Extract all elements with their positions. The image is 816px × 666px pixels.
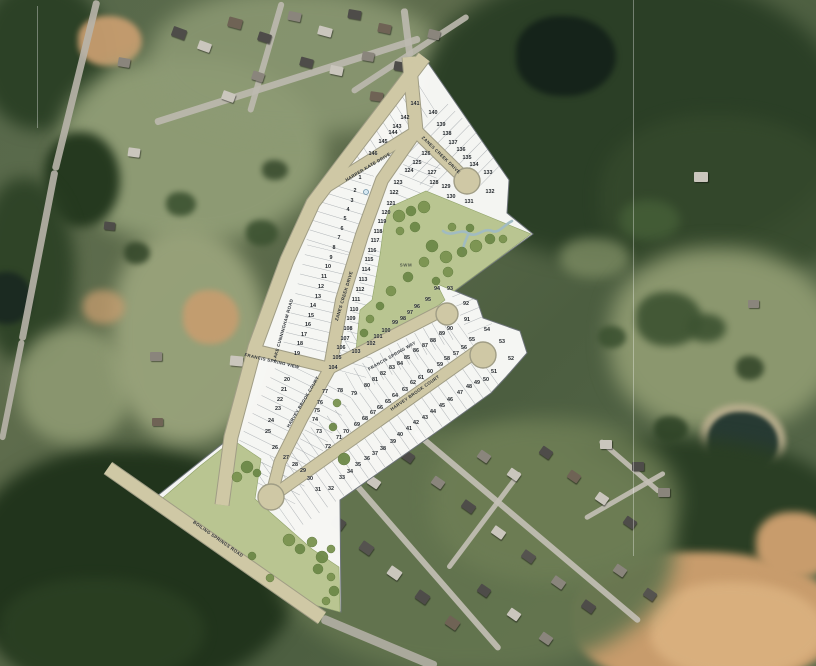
lot-number: 138 bbox=[442, 130, 451, 136]
lot-number: 61 bbox=[418, 374, 424, 380]
lot-number: 142 bbox=[400, 114, 409, 120]
lot-number: 5 bbox=[343, 215, 346, 221]
lot-number: 26 bbox=[272, 444, 278, 450]
lot-number: 62 bbox=[410, 379, 416, 385]
lot-number: 9 bbox=[329, 254, 332, 260]
lot-number: 10 bbox=[325, 263, 331, 269]
lot-number: 132 bbox=[485, 188, 494, 194]
lot-number: 137 bbox=[448, 139, 457, 145]
lot-number: 82 bbox=[380, 370, 386, 376]
lot-number: 37 bbox=[372, 450, 378, 456]
lot-number: 144 bbox=[388, 129, 397, 135]
lot-number: 80 bbox=[364, 382, 370, 388]
lot-number: 104 bbox=[328, 364, 337, 370]
lot-number: 72 bbox=[325, 443, 331, 449]
lot-number: 56 bbox=[461, 344, 467, 350]
lot-number: 101 bbox=[373, 333, 382, 339]
lot-number: 99 bbox=[392, 319, 398, 325]
lot-number: 76 bbox=[317, 399, 323, 405]
lot-number: 52 bbox=[508, 355, 514, 361]
lot-number: 60 bbox=[427, 368, 433, 374]
lot-number: 48 bbox=[466, 383, 472, 389]
lot-number: 11 bbox=[321, 273, 327, 279]
lot-number: 21 bbox=[281, 386, 287, 392]
lot-numbers: 1234567891011121314151617181920212223242… bbox=[0, 0, 816, 666]
lot-number: 40 bbox=[397, 431, 403, 437]
lot-number: 6 bbox=[340, 225, 343, 231]
lot-number: 106 bbox=[336, 344, 345, 350]
lot-number: 46 bbox=[447, 396, 453, 402]
lot-number: 17 bbox=[301, 331, 307, 337]
lot-number: 34 bbox=[347, 468, 353, 474]
lot-number: 115 bbox=[365, 256, 374, 262]
lot-number: 123 bbox=[393, 179, 402, 185]
lot-number: 47 bbox=[457, 389, 463, 395]
lot-number: 54 bbox=[484, 326, 490, 332]
lot-number: 71 bbox=[336, 434, 342, 440]
lot-number: 13 bbox=[315, 293, 321, 299]
lot-number: 22 bbox=[277, 396, 283, 402]
lot-number: 2 bbox=[353, 187, 356, 193]
lot-number: 35 bbox=[355, 461, 361, 467]
lot-number: 27 bbox=[283, 454, 289, 460]
lot-number: 53 bbox=[499, 338, 505, 344]
lot-number: 31 bbox=[315, 486, 321, 492]
lot-number: 141 bbox=[410, 100, 419, 106]
lot-number: 19 bbox=[294, 350, 300, 356]
lot-number: 92 bbox=[463, 300, 469, 306]
lot-number: 1 bbox=[358, 174, 361, 180]
lot-number: 16 bbox=[305, 321, 311, 327]
lot-number: 65 bbox=[385, 398, 391, 404]
lot-number: 109 bbox=[346, 315, 355, 321]
lot-number: 73 bbox=[316, 428, 322, 434]
lot-number: 139 bbox=[436, 121, 445, 127]
lot-number: 121 bbox=[386, 200, 395, 206]
lot-number: 24 bbox=[268, 417, 274, 423]
lot-number: 59 bbox=[437, 361, 443, 367]
lot-number: 94 bbox=[434, 285, 440, 291]
lot-number: 41 bbox=[406, 425, 412, 431]
lot-number: 23 bbox=[275, 405, 281, 411]
lot-number: 136 bbox=[456, 146, 465, 152]
lot-number: 79 bbox=[351, 390, 357, 396]
lot-number: 127 bbox=[427, 169, 436, 175]
lot-number: 86 bbox=[413, 347, 419, 353]
lot-number: 117 bbox=[371, 237, 380, 243]
lot-number: 78 bbox=[337, 387, 343, 393]
lot-number: 32 bbox=[328, 485, 334, 491]
lot-number: 4 bbox=[346, 206, 349, 212]
lot-number: 25 bbox=[265, 428, 271, 434]
lot-number: 128 bbox=[429, 179, 438, 185]
lot-number: 122 bbox=[389, 189, 398, 195]
lot-number: 84 bbox=[397, 360, 403, 366]
lot-number: 74 bbox=[312, 416, 318, 422]
lot-number: 45 bbox=[439, 402, 445, 408]
lot-number: 39 bbox=[390, 438, 396, 444]
lot-number: 108 bbox=[343, 325, 352, 331]
lot-number: 90 bbox=[447, 325, 453, 331]
lot-number: 68 bbox=[362, 415, 368, 421]
lot-number: 30 bbox=[307, 475, 313, 481]
lot-number: 64 bbox=[392, 392, 398, 398]
lot-number: 129 bbox=[441, 183, 450, 189]
lot-number: 8 bbox=[332, 244, 335, 250]
lot-number: 103 bbox=[351, 348, 360, 354]
lot-number: 66 bbox=[377, 404, 383, 410]
lot-number: 135 bbox=[462, 154, 471, 160]
lot-number: 145 bbox=[378, 138, 387, 144]
lot-number: 131 bbox=[464, 198, 473, 204]
lot-number: 75 bbox=[314, 407, 320, 413]
lot-number: 15 bbox=[308, 312, 314, 318]
lot-number: 118 bbox=[374, 228, 383, 234]
lot-number: 87 bbox=[422, 342, 428, 348]
lot-number: 146 bbox=[368, 150, 377, 156]
lot-number: 88 bbox=[430, 337, 436, 343]
lot-number: 7 bbox=[337, 234, 340, 240]
lot-number: 3 bbox=[350, 197, 353, 203]
lot-number: 18 bbox=[297, 340, 303, 346]
lot-number: 12 bbox=[318, 283, 324, 289]
lot-number: 134 bbox=[469, 161, 478, 167]
lot-number: 14 bbox=[310, 302, 316, 308]
lot-number: 113 bbox=[359, 276, 368, 282]
lot-number: 107 bbox=[340, 335, 349, 341]
lot-number: 51 bbox=[491, 368, 497, 374]
lot-number: 111 bbox=[352, 296, 360, 302]
lot-number: 49 bbox=[474, 379, 480, 385]
lot-number: 140 bbox=[428, 109, 437, 115]
lot-number: 100 bbox=[381, 327, 390, 333]
lot-number: 97 bbox=[407, 309, 413, 315]
lot-number: 114 bbox=[362, 266, 371, 272]
lot-number: 38 bbox=[380, 445, 386, 451]
lot-number: 67 bbox=[370, 409, 376, 415]
site-plan-map: HARPER KATE DRIVE ZANES CREEK DRIVE ZANE… bbox=[0, 0, 816, 666]
lot-number: 95 bbox=[425, 296, 431, 302]
lot-number: 36 bbox=[364, 455, 370, 461]
lot-number: 28 bbox=[292, 461, 298, 467]
lot-number: 116 bbox=[368, 247, 377, 253]
lot-number: 130 bbox=[446, 193, 455, 199]
lot-number: 120 bbox=[381, 209, 390, 215]
lot-number: 119 bbox=[378, 218, 387, 224]
lot-number: 50 bbox=[483, 376, 489, 382]
lot-number: 93 bbox=[447, 285, 453, 291]
lot-number: 44 bbox=[430, 408, 436, 414]
lot-number: 133 bbox=[483, 169, 492, 175]
lot-number: 89 bbox=[439, 330, 445, 336]
lot-number: 102 bbox=[366, 340, 375, 346]
lot-number: 55 bbox=[469, 336, 475, 342]
lot-number: 20 bbox=[284, 376, 290, 382]
lot-number: 125 bbox=[412, 159, 421, 165]
lot-number: 58 bbox=[444, 355, 450, 361]
lot-number: 85 bbox=[404, 354, 410, 360]
lot-number: 126 bbox=[421, 150, 430, 156]
lot-number: 57 bbox=[453, 350, 459, 356]
lot-number: 77 bbox=[322, 388, 328, 394]
lot-number: 43 bbox=[422, 414, 428, 420]
lot-number: 124 bbox=[404, 167, 413, 173]
lot-number: 42 bbox=[413, 419, 419, 425]
lot-number: 83 bbox=[389, 364, 395, 370]
lot-number: 63 bbox=[402, 386, 408, 392]
lot-number: 33 bbox=[339, 474, 345, 480]
lot-number: 91 bbox=[464, 316, 470, 322]
lot-number: 70 bbox=[343, 428, 349, 434]
lot-number: 29 bbox=[300, 467, 306, 473]
lot-number: 112 bbox=[356, 286, 365, 292]
lot-number: 110 bbox=[350, 306, 359, 312]
lot-number: 69 bbox=[354, 421, 360, 427]
lot-number: 105 bbox=[332, 354, 341, 360]
lot-number: 98 bbox=[400, 315, 406, 321]
lot-number: 81 bbox=[372, 376, 378, 382]
lot-number: 96 bbox=[414, 303, 420, 309]
